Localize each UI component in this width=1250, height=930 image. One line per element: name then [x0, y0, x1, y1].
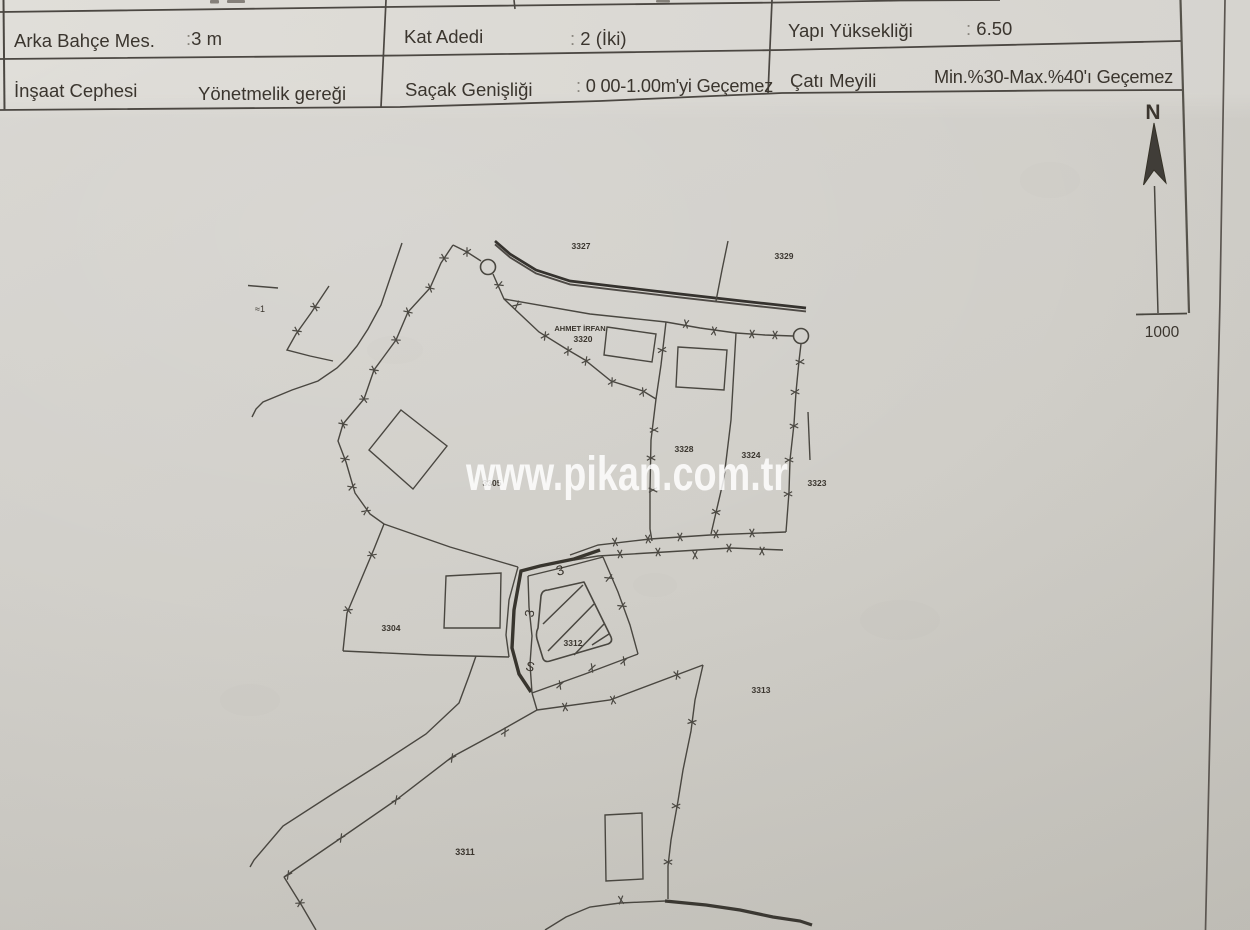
svg-text:3312: 3312: [564, 638, 583, 648]
svg-text:: 2 (İki): : 2 (İki): [570, 28, 627, 49]
svg-text:3: 3: [521, 609, 537, 619]
svg-text:Min.%30-Max.%40'ı Geçemez: Min.%30-Max.%40'ı Geçemez: [934, 67, 1173, 87]
svg-text:Arka Bahçe Mes.: Arka Bahçe Mes.: [14, 30, 155, 51]
svg-text:3: 3: [554, 561, 566, 578]
svg-text:N: N: [1145, 101, 1160, 124]
svg-text:Saçak Genişliği: Saçak Genişliği: [405, 79, 533, 100]
svg-text:3311: 3311: [455, 847, 475, 857]
svg-text:Yönetmelik gereği: Yönetmelik gereği: [198, 83, 346, 104]
svg-text:: 0 00-1.00m'yi Geçemez: : 0 00-1.00m'yi Geçemez: [576, 76, 773, 96]
svg-text:: 6.50: : 6.50: [966, 18, 1012, 39]
svg-text:Kat Adedi: Kat Adedi: [404, 26, 483, 47]
svg-text:AHMET İRFAN: AHMET İRFAN: [554, 324, 605, 333]
svg-text:3320: 3320: [574, 334, 593, 344]
svg-text:3329: 3329: [775, 251, 794, 261]
svg-text:3327: 3327: [572, 241, 591, 251]
svg-text:3313: 3313: [752, 685, 771, 695]
svg-text:www.pikan.com.tr: www.pikan.com.tr: [465, 448, 788, 501]
svg-text:3323: 3323: [808, 478, 827, 488]
svg-text:Çatı Meyili: Çatı Meyili: [790, 70, 876, 91]
svg-text:3304: 3304: [382, 623, 401, 633]
svg-text:1000: 1000: [1145, 324, 1180, 341]
svg-text:≈1: ≈1: [255, 304, 265, 314]
svg-text:İnşaat Cephesi: İnşaat Cephesi: [14, 80, 137, 101]
svg-text:Yapı Yüksekliği: Yapı Yüksekliği: [788, 20, 913, 41]
svg-text::3 m: :3 m: [186, 28, 222, 49]
svg-text:S: S: [524, 658, 537, 675]
